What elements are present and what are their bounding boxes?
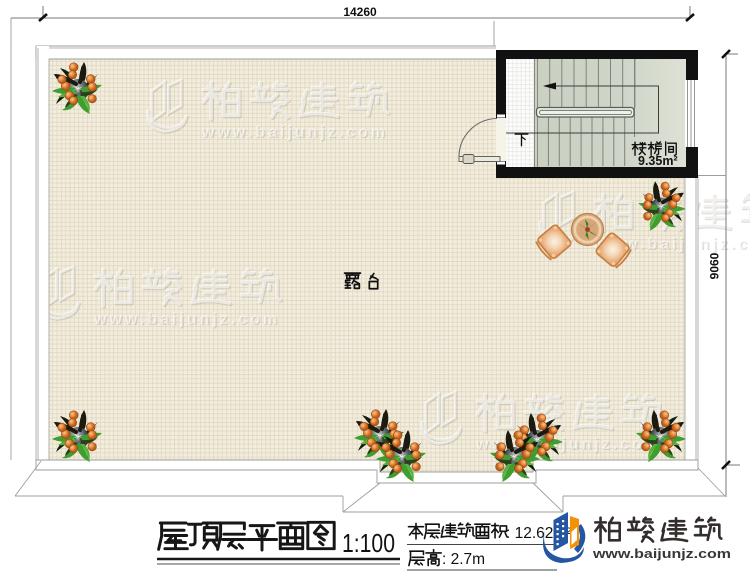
- svg-text:14260: 14260: [343, 5, 377, 19]
- svg-text:www.baijunjz.com: www.baijunjz.com: [93, 311, 280, 328]
- svg-text:1:100: 1:100: [342, 528, 395, 558]
- svg-text:: 2.7m: : 2.7m: [442, 551, 485, 568]
- svg-text:www.baijunjz.com: www.baijunjz.com: [592, 547, 731, 561]
- svg-text:www.baijunjz.com: www.baijunjz.com: [201, 124, 388, 141]
- svg-text:9.35m²: 9.35m²: [638, 154, 678, 168]
- svg-text:9060: 9060: [708, 252, 722, 279]
